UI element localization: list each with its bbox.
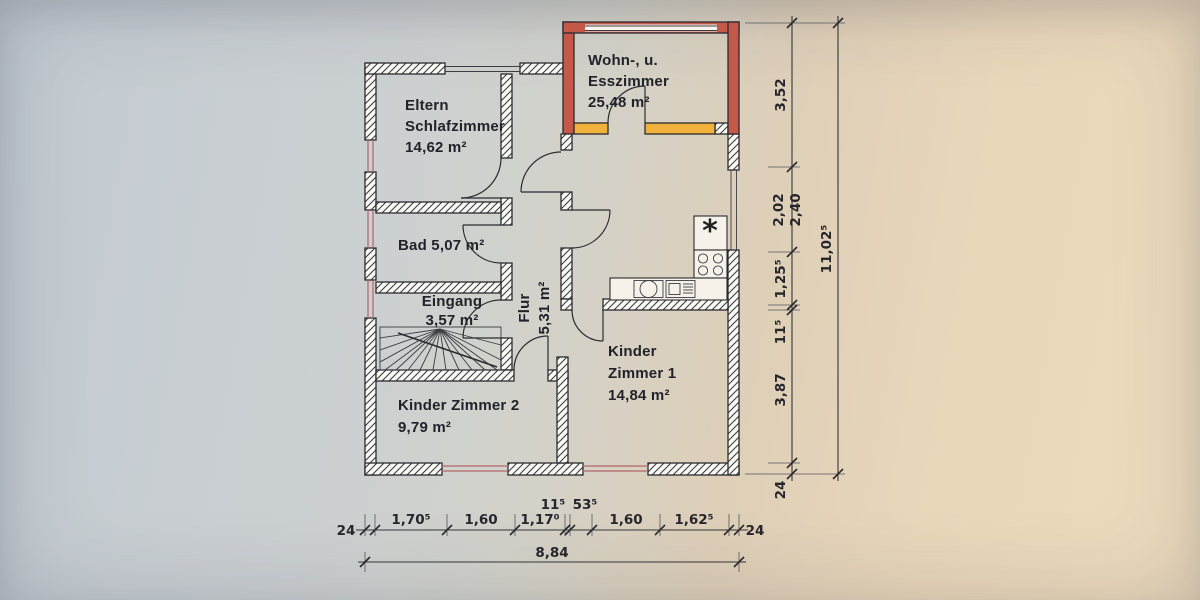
staircase	[380, 327, 501, 370]
kinder2-name: Kinder Zimmer 2	[398, 397, 519, 414]
eltern-name-1: Eltern	[405, 97, 449, 114]
old-wall-orange	[574, 123, 715, 134]
dim-b1: 1,70⁵	[391, 512, 430, 528]
kinder1-area: 14,84 m²	[608, 387, 670, 404]
floor-plan: * Wohn-, u. Esszimmer 25,48 m² Eltern Sc…	[0, 0, 1200, 600]
dim-b6: 1,60	[609, 512, 642, 528]
room-label-flur: Flur 5,31 m²	[516, 281, 553, 334]
kinder1-name-2: Zimmer 1	[608, 365, 676, 382]
dim-r1: 3,52	[773, 78, 789, 111]
room-label-eltern: Eltern Schlafzimmer 14,62 m²	[405, 97, 505, 156]
wohn-name-2: Esszimmer	[588, 73, 669, 90]
kinder2-area: 9,79 m²	[398, 419, 451, 436]
dim-wall-left: 24	[337, 523, 356, 539]
wohn-area: 25,48 m²	[588, 94, 650, 111]
room-label-eingang: Eingang 3,57 m²	[422, 293, 483, 329]
dim-bottom-total: 8,84	[535, 545, 568, 561]
dim-r-wall: 24	[773, 481, 789, 500]
flur-area: 5,31 m²	[536, 281, 553, 334]
dim-b2: 1,60	[464, 512, 497, 528]
dim-b5: 53⁵	[573, 497, 598, 513]
dim-b3: 1,17⁰	[520, 512, 559, 528]
kitchen-counter	[610, 278, 727, 300]
dimension-chain-right: 3,52 2,02 2,40 1,25⁵ 11⁵ 3,87 24 11,02⁵	[745, 16, 845, 499]
kinder1-name-1: Kinder	[608, 343, 657, 360]
dim-r2a: 2,02	[771, 193, 787, 226]
eingang-area: 3,57 m²	[425, 312, 478, 329]
eltern-area: 14,62 m²	[405, 139, 467, 156]
dimension-chain-bottom: 24 1,70⁵ 1,60 1,17⁰ 11⁵ 53⁵ 1,60 1,62⁵ 2…	[337, 497, 765, 572]
wohn-name-1: Wohn-, u.	[588, 52, 658, 69]
dim-r2b: 2,40	[788, 193, 804, 226]
dim-r5: 3,87	[773, 373, 789, 406]
room-label-bad: Bad 5,07 m²	[398, 237, 484, 254]
eltern-name-2: Schlafzimmer	[405, 118, 505, 135]
freezer-star-icon: *	[702, 214, 718, 249]
dim-b4: 11⁵	[541, 497, 566, 513]
eingang-name: Eingang	[422, 293, 483, 310]
dim-b7: 1,62⁵	[674, 512, 713, 528]
room-label-kinder2: Kinder Zimmer 2 9,79 m²	[398, 397, 519, 436]
flur-name: Flur	[516, 293, 533, 322]
stove	[694, 250, 727, 278]
room-label-kinder1: Kinder Zimmer 1 14,84 m²	[608, 343, 676, 404]
room-label-wohn-esszimmer: Wohn-, u. Esszimmer 25,48 m²	[588, 52, 669, 111]
kitchen-fixtures: *	[610, 214, 727, 300]
dim-right-total: 11,02⁵	[819, 225, 835, 274]
dim-wall-right: 24	[746, 523, 765, 539]
dim-r3: 1,25⁵	[773, 259, 789, 298]
dim-r4: 11⁵	[773, 320, 789, 345]
